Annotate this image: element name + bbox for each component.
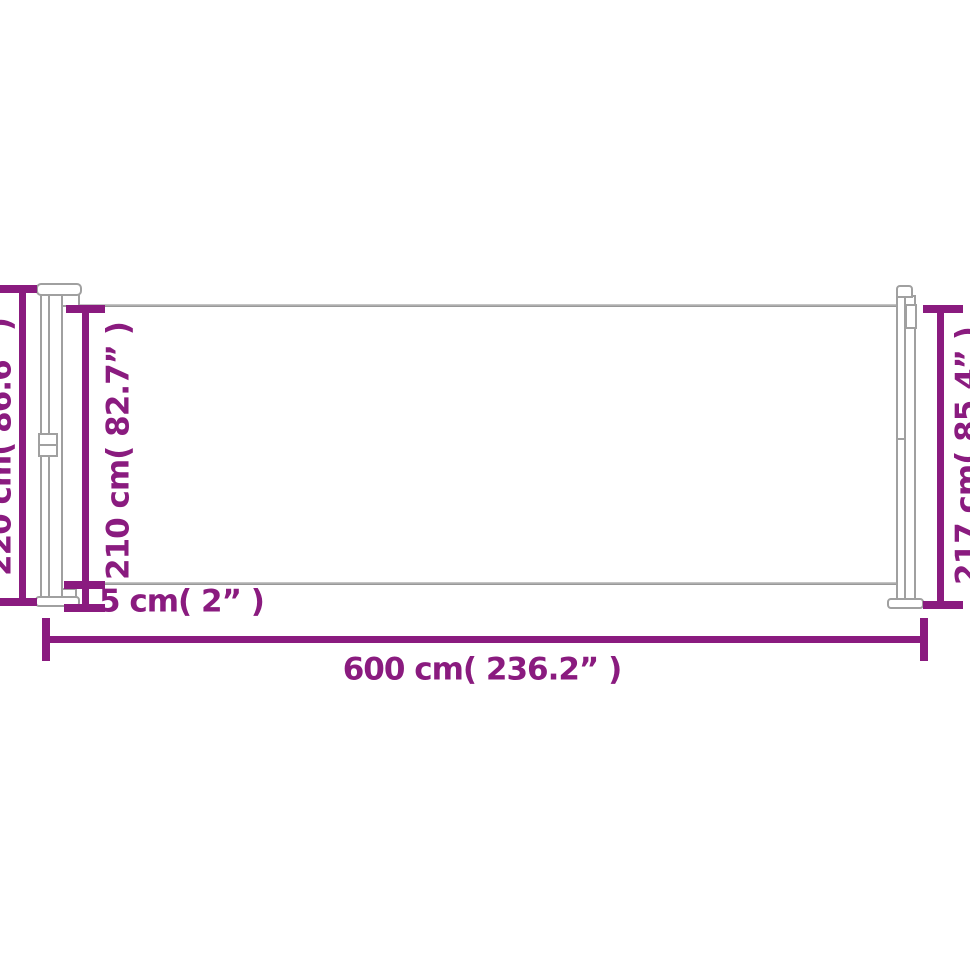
pole-cap	[896, 285, 913, 298]
pole-inner-line	[904, 297, 906, 600]
dim-total-height-cap-bottom	[0, 598, 37, 606]
dim-fabric-height-cap-top	[66, 305, 105, 313]
dim-total-length-cap-right	[920, 618, 928, 661]
dim-pole-height-line	[937, 308, 944, 605]
fabric-top-edge	[78, 304, 899, 307]
bottom-gap-label: 5 cm( 2” )	[99, 587, 264, 618]
dim-total-height-line	[19, 288, 26, 603]
cassette-cap	[36, 283, 82, 296]
pole-body	[896, 295, 916, 602]
dim-total-length-cap-left	[42, 618, 50, 661]
dim-total-height-cap-top	[0, 285, 37, 293]
product-dimension-diagram: 220 cm( 86.6” ) 210 cm( 82.7” ) 217 cm( …	[0, 0, 970, 971]
pole-height-label: 217 cm( 85.4” )	[953, 327, 970, 585]
dim-pole-height-cap-top	[923, 305, 963, 313]
dim-pole-height-cap-bottom	[923, 601, 963, 609]
total-length-label: 600 cm( 236.2” )	[343, 655, 622, 686]
pole-foot-plate	[887, 598, 924, 609]
fabric-height-label: 210 cm( 82.7” )	[104, 322, 135, 580]
pole-joint-line	[898, 438, 906, 440]
total-height-label: 220 cm( 86.6” )	[0, 318, 17, 576]
dim-fabric-height-line	[82, 308, 89, 586]
cassette-latch-line	[40, 444, 56, 446]
dim-total-length-line	[46, 636, 925, 643]
pole-fabric-hook	[905, 304, 917, 329]
